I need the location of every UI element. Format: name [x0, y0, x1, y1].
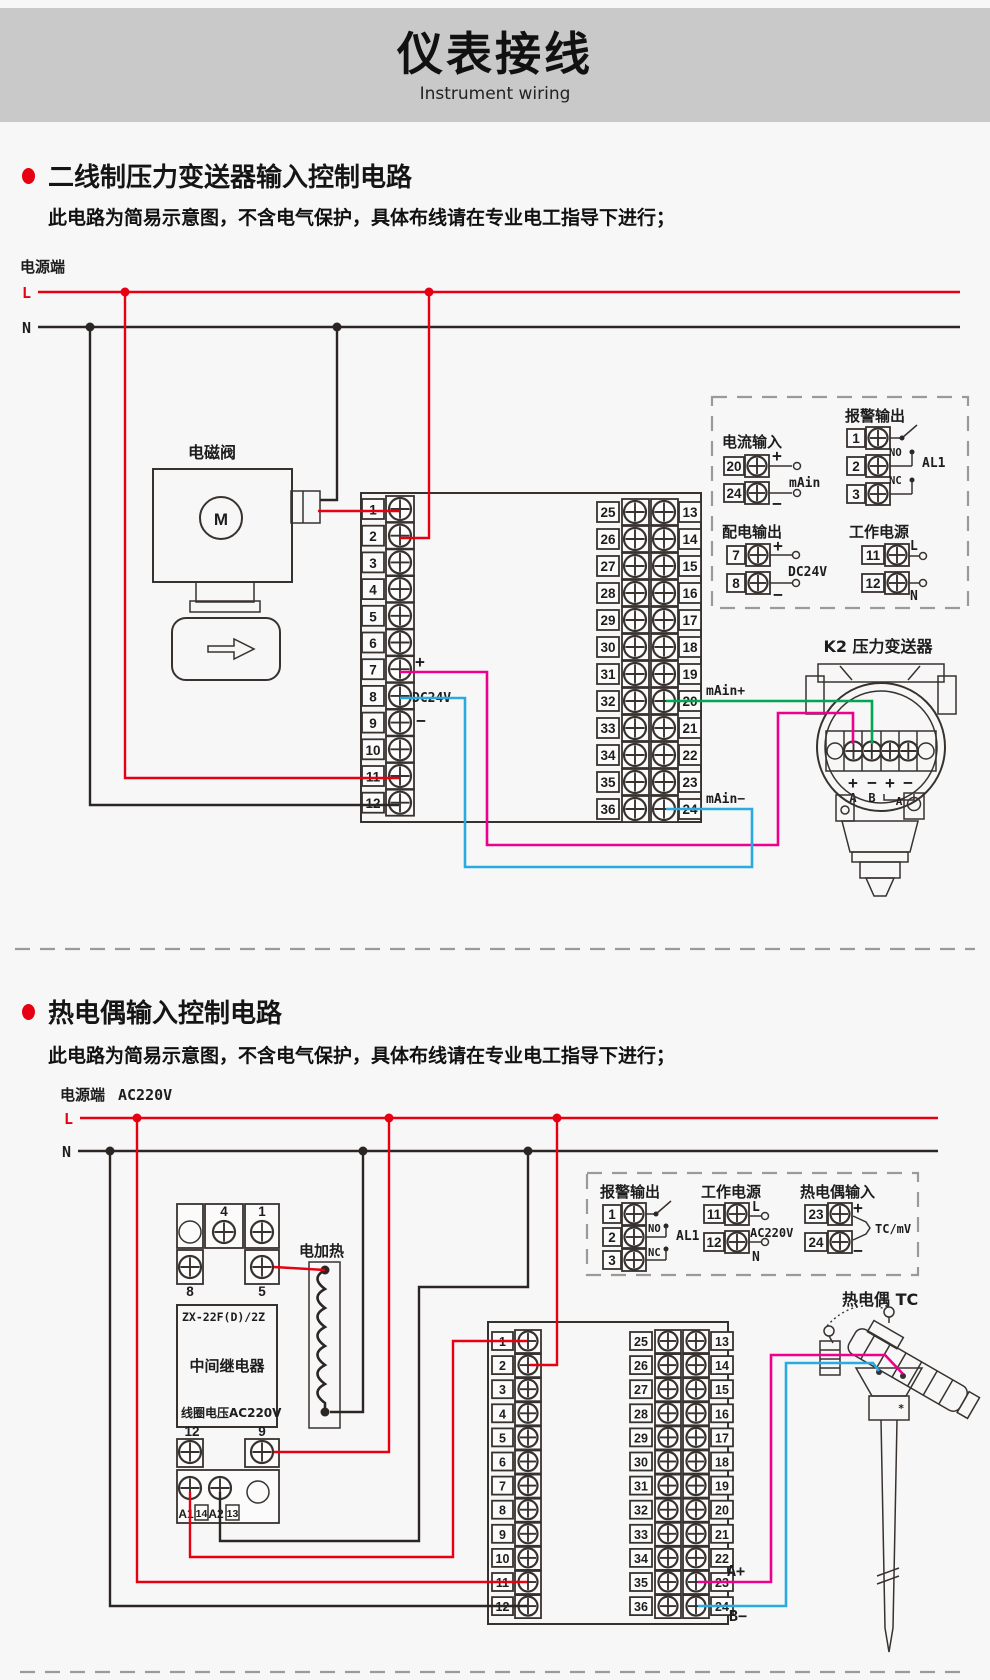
a-plus-label: A+	[727, 1562, 745, 1580]
nc-label-1: NC	[889, 475, 902, 487]
terminal-rows-right-1: 25 13 26 14	[597, 499, 701, 822]
wiring-diagram: 电源端 L N 电磁阀 M	[0, 0, 990, 1680]
terminal-row: 26 14	[630, 1354, 733, 1377]
svg-text:14: 14	[682, 532, 698, 547]
svg-text:2: 2	[499, 1359, 506, 1373]
svg-text:19: 19	[715, 1480, 729, 1494]
svg-text:30: 30	[600, 640, 615, 655]
nc-label-2: NC	[648, 1247, 661, 1259]
svg-text:31: 31	[634, 1480, 648, 1494]
alarm-output-group-2: 报警输出 1 2 3 NO NC AL1	[600, 1183, 700, 1271]
terminal: 1	[362, 496, 414, 522]
relay-model: ZX-22F(D)/2Z	[182, 1310, 265, 1324]
svg-text:17: 17	[682, 613, 697, 628]
power-dist-group: 配电输出 7 + DC24V 8 −	[722, 523, 827, 604]
tc-minus: −	[853, 1241, 863, 1260]
svg-text:3: 3	[499, 1383, 506, 1397]
tc-plus: +	[853, 1198, 863, 1217]
svg-text:25: 25	[600, 505, 616, 520]
wire-n-to-t12	[90, 327, 399, 805]
terminal: 7	[492, 1475, 541, 1498]
svg-text:5: 5	[369, 609, 377, 624]
svg-text:18: 18	[715, 1456, 729, 1470]
n-label-2: N	[752, 1250, 760, 1265]
svg-text:32: 32	[634, 1504, 648, 1518]
terminal: 11	[362, 763, 414, 789]
svg-text:2: 2	[852, 459, 860, 474]
terminal-row: 33 21	[597, 715, 701, 741]
svg-text:6: 6	[369, 636, 377, 651]
terminal: 3	[492, 1378, 541, 1401]
svg-text:12: 12	[365, 796, 380, 811]
terminal-row: 31 19	[597, 661, 701, 687]
terminal: 3	[362, 549, 414, 575]
work-power-group-1: 工作电源 11 L 12 N	[849, 523, 927, 604]
terminal-row: 34 22	[597, 742, 701, 768]
svg-text:14: 14	[715, 1359, 729, 1373]
l-label: L	[910, 539, 918, 554]
wire-l-to-t2	[530, 1118, 557, 1365]
current-input-group: 电流输入 20 + mAin 24 −	[722, 433, 820, 513]
tc-gland-nut	[820, 1341, 840, 1375]
terminal: 4	[492, 1402, 541, 1425]
svg-text:11: 11	[707, 1207, 722, 1222]
svg-text:23: 23	[808, 1207, 824, 1222]
svg-text:36: 36	[600, 802, 616, 817]
tx-minus1: −	[867, 773, 877, 792]
svg-text:25: 25	[634, 1335, 648, 1349]
terminal: 5	[492, 1426, 541, 1449]
power-terminal-label-2: 电源端	[60, 1086, 105, 1104]
svg-text:28: 28	[634, 1407, 648, 1421]
ac220v-label: AC220V	[118, 1086, 172, 1104]
transmitter-label: K2 压力变送器	[823, 637, 933, 656]
svg-text:7: 7	[499, 1480, 506, 1494]
plus-sign: +	[773, 536, 783, 555]
line-l-label-1: L	[22, 284, 31, 302]
main-minus-label: mAin−	[706, 792, 745, 807]
svg-text:36: 36	[634, 1600, 648, 1614]
relay-coil-label: 线圈电压AC220V	[181, 1405, 282, 1420]
relay-t4: 4	[220, 1204, 228, 1219]
svg-text:22: 22	[682, 748, 697, 763]
flow-arrow-icon	[208, 639, 254, 659]
transmitter-cap	[818, 664, 944, 682]
svg-text:21: 21	[715, 1528, 729, 1542]
work-power-group-2: 工作电源 11 L AC220V 12 N	[701, 1183, 793, 1265]
svg-text:35: 35	[634, 1576, 648, 1590]
svg-text:26: 26	[600, 532, 616, 547]
tc-probe-tip	[885, 1628, 893, 1652]
al1-label-2: AL1	[676, 1229, 700, 1244]
power-rails-2: 电源端 AC220V L N	[60, 1086, 938, 1161]
ac220v-label-2: AC220V	[750, 1226, 793, 1240]
no-label-2: NO	[648, 1223, 661, 1235]
power-rails-1: 电源端 L N	[20, 258, 960, 337]
svg-text:23: 23	[682, 775, 698, 790]
l-label-2: L	[752, 1200, 760, 1215]
line-n-label-2: N	[62, 1143, 71, 1161]
relay-t12: 12	[184, 1424, 199, 1439]
t8-minus-label: −	[416, 711, 426, 730]
svg-text:7: 7	[732, 548, 740, 563]
terminal-row: 28 16	[597, 580, 701, 606]
terminal-row: 27 15	[597, 553, 701, 579]
terminal-row: 25 13	[597, 499, 701, 525]
main-plus-label: mAin+	[706, 684, 745, 699]
dashed-panel-1: 电流输入 20 + mAin 24 − 报警输出 1 2 3	[712, 397, 968, 608]
relay-t1: 1	[258, 1204, 266, 1219]
alarm-title-1: 报警输出	[845, 407, 905, 425]
svg-text:14: 14	[196, 1508, 208, 1520]
svg-text:6: 6	[499, 1456, 506, 1470]
tx-a2: A	[896, 795, 903, 808]
n-label: N	[910, 589, 918, 604]
valve-body	[172, 618, 280, 680]
al1-label-1: AL1	[922, 456, 946, 471]
wire-n-to-heater	[330, 1151, 363, 1412]
svg-text:27: 27	[634, 1383, 648, 1397]
tc-input-title: 热电偶输入	[800, 1183, 875, 1201]
wire-l-to-relay9	[274, 1118, 389, 1452]
svg-text:8: 8	[732, 576, 740, 591]
terminal-row: 35 23	[597, 769, 701, 795]
tx-minus2: −	[903, 773, 913, 792]
terminal-rows-right-2: 25 13 26 14	[630, 1330, 733, 1618]
svg-text:15: 15	[715, 1383, 729, 1397]
svg-text:35: 35	[600, 775, 616, 790]
tc-mv-label: TC/mV	[875, 1222, 911, 1236]
solenoid-valve: 电磁阀 M	[153, 443, 320, 680]
svg-text:9: 9	[499, 1528, 506, 1542]
svg-text:20: 20	[726, 459, 741, 474]
terminal-row: 33 21	[630, 1523, 733, 1546]
alarm-output-group-1: 报警输出 1 2 3 NO NC AL1	[845, 407, 946, 505]
alarm-title-2: 报警输出	[600, 1183, 660, 1201]
pressure-transmitter: K2 压力变送器 + − + − A B A	[806, 637, 956, 896]
svg-text:8: 8	[499, 1504, 506, 1518]
heater-coil-icon	[318, 1270, 326, 1412]
solenoid-label: 电磁阀	[188, 443, 236, 462]
svg-text:27: 27	[600, 559, 615, 574]
terminal-row: 25 13	[630, 1330, 733, 1353]
svg-text:12: 12	[865, 576, 880, 591]
plus-sign: +	[772, 446, 782, 465]
b-minus-label: B−	[729, 1607, 747, 1625]
power-terminal-label-1: 电源端	[20, 258, 65, 276]
intermediate-relay: 4 1 8 5 ZX-22F(D)/2Z 中间继电器 线圈电压AC220V 12…	[177, 1204, 282, 1523]
terminal: 7	[362, 656, 414, 682]
terminal: 5	[362, 603, 414, 629]
terminal: 2	[362, 523, 414, 549]
terminal: 8	[492, 1499, 541, 1522]
svg-text:13: 13	[682, 505, 698, 520]
terminal-row: 29 17	[630, 1426, 733, 1449]
solenoid-connector	[291, 491, 320, 523]
thermocouple: 热电偶 TC *	[820, 1290, 987, 1652]
terminal-strip-left-1: 1 2 3 4	[362, 496, 414, 816]
heater-label: 电加热	[299, 1242, 344, 1260]
t7-plus-label: +	[415, 652, 425, 671]
line-n-label-1: N	[22, 319, 31, 337]
svg-text:24: 24	[808, 1235, 824, 1250]
svg-text:4: 4	[369, 583, 377, 598]
terminal: 6	[492, 1451, 541, 1474]
svg-text:34: 34	[600, 748, 616, 763]
terminal: 8	[362, 683, 414, 709]
svg-text:34: 34	[634, 1552, 648, 1566]
terminal: 12	[362, 790, 414, 816]
svg-text:33: 33	[600, 721, 616, 736]
svg-text:17: 17	[715, 1431, 729, 1445]
terminal-strip-left-2: 1 2 3 4	[492, 1330, 541, 1618]
svg-text:15: 15	[682, 559, 698, 574]
tc-funnel	[856, 1368, 922, 1396]
svg-text:4: 4	[499, 1407, 506, 1421]
terminal-row: 32 20	[630, 1499, 733, 1522]
terminal-block-1: 1 2 3 4	[361, 493, 745, 822]
svg-text:10: 10	[365, 743, 380, 758]
svg-text:16: 16	[682, 586, 698, 601]
svg-text:29: 29	[600, 613, 615, 628]
relay-a2: A2	[208, 1507, 224, 1521]
tx-plus2: +	[885, 773, 895, 792]
tx-thread-tip	[866, 878, 894, 896]
terminal: 9	[362, 710, 414, 736]
svg-text:28: 28	[600, 586, 616, 601]
svg-text:2: 2	[369, 529, 377, 544]
svg-text:26: 26	[634, 1359, 648, 1373]
svg-text:18: 18	[682, 640, 698, 655]
tx-b: B	[868, 791, 875, 805]
relay-name: 中间继电器	[189, 1357, 265, 1375]
svg-text:9: 9	[369, 716, 377, 731]
svg-text:1: 1	[852, 431, 860, 446]
terminal-block-2: 1 2 3 4	[488, 1322, 747, 1625]
svg-text:5: 5	[499, 1431, 506, 1445]
work-title-1: 工作电源	[849, 523, 909, 541]
relay-t9: 9	[258, 1424, 266, 1439]
svg-text:12: 12	[706, 1235, 721, 1250]
svg-text:13: 13	[715, 1335, 729, 1349]
relay-a1: A1	[178, 1507, 194, 1521]
relay-t8: 8	[186, 1284, 194, 1299]
tx-neck	[842, 821, 918, 852]
tc-probe	[881, 1420, 885, 1628]
svg-text:24: 24	[726, 486, 742, 501]
svg-text:19: 19	[682, 667, 697, 682]
svg-text:3: 3	[852, 487, 860, 502]
work-title-2: 工作电源	[701, 1183, 761, 1201]
terminal-row: 29 17	[597, 607, 701, 633]
terminal-row: 30 18	[597, 634, 701, 660]
svg-text:7: 7	[369, 663, 377, 678]
svg-text:21: 21	[682, 721, 698, 736]
svg-text:33: 33	[634, 1528, 648, 1542]
svg-text:32: 32	[600, 694, 615, 709]
minus-sign: −	[772, 494, 782, 513]
wire-l-to-t11	[125, 292, 399, 778]
dc24v-label: DC24V	[788, 565, 827, 580]
dashed-panel-2: 报警输出 1 2 3 NO NC AL1 工作电源 11	[587, 1173, 918, 1275]
svg-text:10: 10	[496, 1552, 510, 1566]
line-l-label-2: L	[64, 1110, 73, 1128]
svg-text:1: 1	[608, 1207, 616, 1222]
terminal-row: 28 16	[630, 1402, 733, 1425]
svg-text:29: 29	[634, 1431, 648, 1445]
motor-label: M	[214, 510, 228, 529]
svg-text:3: 3	[369, 556, 377, 571]
svg-text:11: 11	[866, 548, 881, 563]
tc-input-group: 热电偶输入 23 + 24 − TC/mV	[800, 1183, 911, 1260]
main-label: mAin	[789, 476, 820, 491]
terminal-row: 26 14	[597, 526, 701, 552]
terminal-row: 27 15	[630, 1378, 733, 1401]
svg-text:16: 16	[715, 1407, 729, 1421]
svg-text:20: 20	[715, 1504, 729, 1518]
svg-text:*: *	[898, 1403, 904, 1415]
terminal: 10	[362, 736, 414, 762]
minus-sign: −	[773, 585, 783, 604]
terminal-row: 31 19	[630, 1475, 733, 1498]
svg-text:8: 8	[369, 689, 377, 704]
svg-text:2: 2	[608, 1230, 616, 1245]
terminal: 10	[492, 1547, 541, 1570]
svg-text:30: 30	[634, 1456, 648, 1470]
terminal: 6	[362, 630, 414, 656]
terminal: 4	[362, 576, 414, 602]
svg-text:3: 3	[608, 1253, 616, 1268]
no-label-1: NO	[889, 447, 902, 459]
page: 仪表接线 Instrument wiring 二线制压力变送器输入控制电路 此电…	[0, 0, 990, 1680]
tx-plus1: +	[848, 773, 858, 792]
terminal: 9	[492, 1523, 541, 1546]
terminal-row: 30 18	[630, 1451, 733, 1474]
terminal-row: 34 22	[630, 1547, 733, 1570]
wire-n-to-solenoid	[320, 327, 337, 500]
svg-text:31: 31	[600, 667, 616, 682]
valve-stem	[196, 582, 254, 602]
relay-t5: 5	[258, 1284, 266, 1299]
thermocouple-label: 热电偶 TC	[842, 1290, 918, 1309]
wire-relay5-to-heater	[274, 1267, 325, 1270]
svg-text:13: 13	[227, 1508, 239, 1520]
